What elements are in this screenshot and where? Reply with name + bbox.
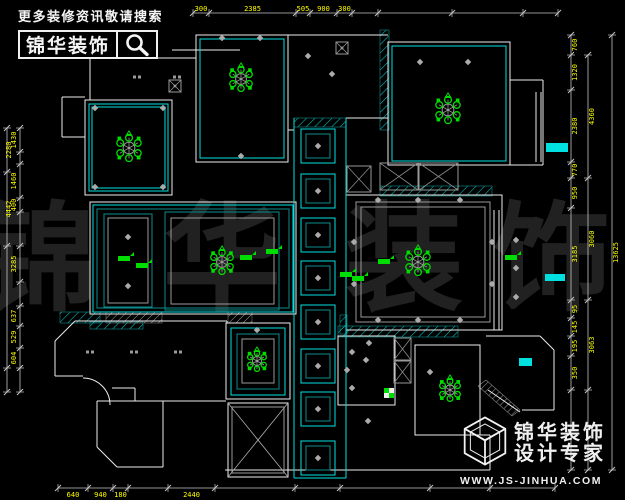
cube-logo-icon xyxy=(460,415,510,472)
checker-fixture xyxy=(389,388,394,393)
wall-hatch xyxy=(294,118,346,127)
header-tagline: 更多装修资讯敬请搜索 xyxy=(18,6,163,25)
leader-tag xyxy=(505,255,517,260)
leader-tag xyxy=(378,259,390,264)
downlight-pair xyxy=(135,351,138,354)
downlight-icon xyxy=(344,367,351,374)
downlight-pair xyxy=(130,351,133,354)
downlight-pair xyxy=(86,351,89,354)
wall-hatch xyxy=(338,326,458,337)
dimension-label: 770 xyxy=(571,164,579,177)
window-marker xyxy=(545,274,565,281)
dimension-label: 900 xyxy=(317,5,330,13)
dimension-label: 145 xyxy=(571,321,579,334)
downlight-icon xyxy=(315,275,322,282)
leader-tag xyxy=(240,255,252,260)
footer-brand-slogan: 设计专家 xyxy=(514,444,606,465)
dimension-label: 505 xyxy=(297,5,310,13)
leader-tag xyxy=(130,252,134,256)
window-marker xyxy=(546,143,568,152)
dimension-label: 760 xyxy=(571,39,579,52)
downlight-icon xyxy=(315,232,322,239)
chandelier-icon xyxy=(436,93,460,124)
dimension-label: 637 xyxy=(10,310,18,323)
chandelier-icon xyxy=(230,63,252,91)
cad-canvas: 锦华装饰 30023855059003006409401802440143014… xyxy=(0,0,625,500)
downlight-icon xyxy=(465,59,472,66)
chandelier-icon xyxy=(117,131,141,162)
leader-tag xyxy=(266,249,278,254)
leader-tag xyxy=(340,272,352,277)
dimension-label: 1320 xyxy=(571,64,579,81)
dimension-label: 2385 xyxy=(244,5,261,13)
dimension-label: 95 xyxy=(571,305,579,313)
search-brand-box: 锦华装饰 xyxy=(18,30,158,59)
downlight-icon xyxy=(219,35,226,42)
downlight-icon xyxy=(315,455,322,462)
downlight-icon xyxy=(257,35,264,42)
chandelier-icon xyxy=(440,375,461,401)
brand-name: 锦华装饰 xyxy=(20,31,116,58)
room-outline xyxy=(196,35,288,162)
downlight-pair xyxy=(174,351,177,354)
dimension-label: 4442 xyxy=(5,201,13,218)
dimension-label: 3285 xyxy=(10,256,18,273)
header-brand: 更多装修资讯敬请搜索 锦华装饰 xyxy=(18,6,163,59)
downlight-icon xyxy=(363,357,370,364)
footer-url: WWW.JS-JINHUA.COM xyxy=(460,475,625,487)
downlight-icon xyxy=(315,319,322,326)
dimension-label: 2380 xyxy=(571,118,579,135)
downlight-pair xyxy=(173,76,176,79)
downlight-pair xyxy=(178,76,181,79)
downlight-icon xyxy=(125,283,132,290)
wall-line xyxy=(97,447,117,467)
downlight-icon xyxy=(305,53,312,60)
checker-fixture xyxy=(384,393,389,398)
dimension-label: 940 xyxy=(94,491,107,499)
downlight-icon xyxy=(417,59,424,66)
checker-fixture xyxy=(389,393,394,398)
downlight-icon xyxy=(365,418,372,425)
downlight-pair xyxy=(133,76,136,79)
dimension-label: 300 xyxy=(338,5,351,13)
downlight-pair xyxy=(91,351,94,354)
downlight-pair xyxy=(138,76,141,79)
downlight-icon xyxy=(349,385,356,392)
fan-icon xyxy=(341,47,344,50)
downlight-pair xyxy=(179,351,182,354)
dimension-label: 2280 xyxy=(5,142,13,159)
downlight-icon xyxy=(315,188,322,195)
leader-tag xyxy=(148,259,152,263)
downlight-icon xyxy=(349,349,356,356)
magnifier-icon xyxy=(118,33,156,57)
downlight-icon xyxy=(125,234,132,241)
downlight-icon xyxy=(366,340,373,347)
fan-icon xyxy=(174,85,177,88)
downlight-icon xyxy=(329,71,336,78)
dimension-label: 180 xyxy=(114,491,127,499)
dimension-label: 300 xyxy=(195,5,208,13)
footer-brand-name: 锦华装饰 xyxy=(514,423,606,444)
dimension-label: 3063 xyxy=(588,337,596,354)
dimension-label: 2440 xyxy=(183,491,200,499)
dimension-label: 1460 xyxy=(10,173,18,190)
downlight-icon xyxy=(92,105,99,112)
dimension-label: 13625 xyxy=(612,242,620,263)
downlight-icon xyxy=(315,143,322,150)
window-marker xyxy=(519,358,532,366)
dimension-label: 4360 xyxy=(588,108,596,125)
chandelier-icon xyxy=(248,347,267,371)
leader-tag xyxy=(118,256,130,261)
checker-fixture xyxy=(384,388,389,393)
dimension-label: 3060 xyxy=(588,231,596,248)
downlight-icon xyxy=(427,369,434,376)
watermark: 锦华装饰 xyxy=(0,189,611,328)
watermark-char: 装 xyxy=(345,189,463,328)
dimension-label: 3185 xyxy=(571,246,579,263)
dimension-label: 604 xyxy=(10,352,18,365)
dimension-label: 350 xyxy=(571,367,579,380)
leader-tag xyxy=(136,263,148,268)
downlight-icon xyxy=(315,363,322,370)
footer-brand: 锦华装饰 设计专家 WWW.JS-JINHUA.COM xyxy=(460,415,625,487)
ceiling-rect xyxy=(200,39,284,158)
downlight-icon xyxy=(315,406,322,413)
dimension-label: 195 xyxy=(571,340,579,353)
wall-line xyxy=(540,336,554,350)
dimension-label: 640 xyxy=(67,491,80,499)
leader-tag xyxy=(352,276,364,281)
dimension-label: 950 xyxy=(571,187,579,200)
dimension-label: 529 xyxy=(10,331,18,344)
